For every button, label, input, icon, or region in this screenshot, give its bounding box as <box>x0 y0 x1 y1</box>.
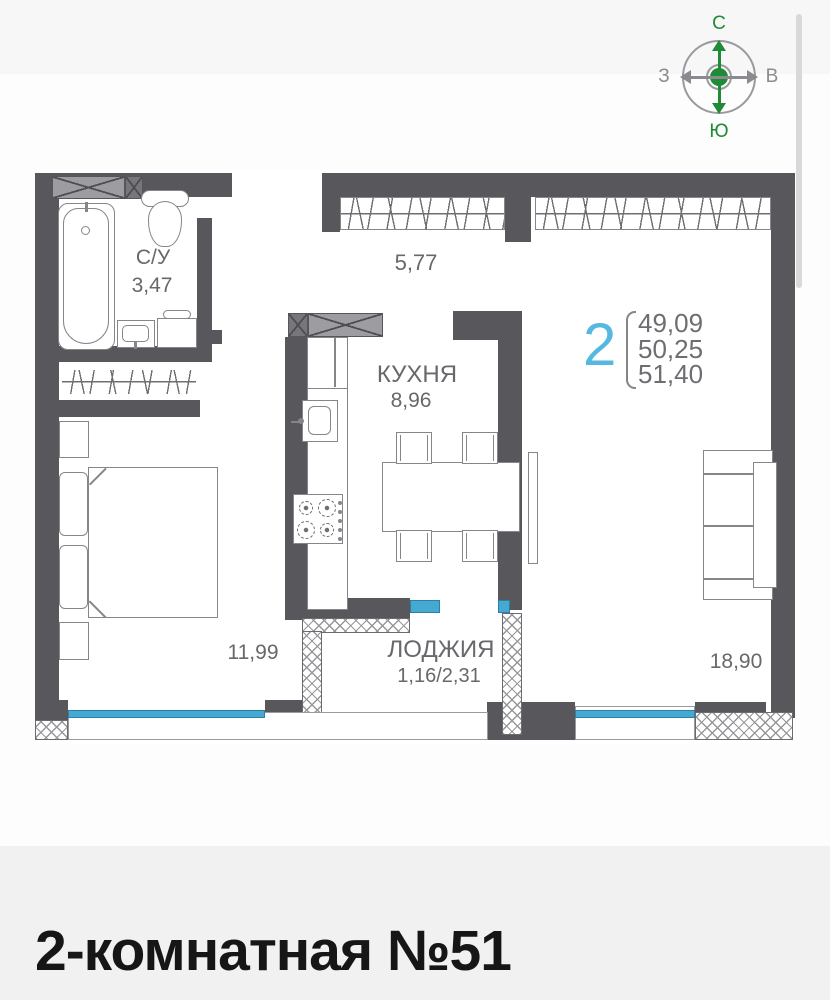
wall-hall-stub <box>505 197 531 242</box>
stove-burner-2 <box>318 499 336 517</box>
rooms-count: 2 <box>583 315 616 375</box>
wall-right <box>771 197 795 718</box>
wall-left <box>35 173 59 720</box>
compass-west-east-arrow <box>690 76 748 79</box>
vent-shaft-kitchen-small <box>288 313 308 337</box>
wardrobe-rail-living <box>535 197 771 230</box>
washer-cabinet-top <box>163 310 191 319</box>
living-room-area: 18,90 <box>710 650 763 674</box>
wall-entry-nub <box>322 197 340 232</box>
washer-cabinet <box>157 318 197 348</box>
wardrobe-rail-corridor <box>62 370 196 394</box>
bathroom-area: 3,47 <box>132 274 173 298</box>
window-marker-loggia-right <box>498 600 510 613</box>
wall-loggia-right-foot <box>487 702 575 740</box>
compass: С Ю З В <box>650 0 810 160</box>
wall-bottom-left-foot <box>35 700 68 720</box>
dining-chair-1 <box>396 432 432 464</box>
summary-area-total: 49,09 <box>638 311 703 337</box>
dining-chair-3 <box>396 530 432 562</box>
bathroom-label: С/У <box>136 246 170 270</box>
vent-shaft-bathroom <box>52 176 125 199</box>
stove-knob-3 <box>338 519 342 523</box>
stove-knob-4 <box>338 528 342 532</box>
stove-knob-2 <box>338 510 342 514</box>
bathroom-sink-basin <box>122 325 149 342</box>
wardrobe-rail-hallway <box>340 197 505 230</box>
bathtub-tap <box>85 202 88 212</box>
hatch-bottom-right <box>695 712 793 740</box>
summary-areas: 49,09 50,25 51,40 <box>638 311 703 388</box>
wall-kitchen-left <box>285 337 307 610</box>
kitchen-fridge-divider <box>334 338 336 387</box>
stove-burner-3 <box>297 521 315 539</box>
stove-burner-1 <box>299 501 313 515</box>
nightstand-bottom <box>59 622 89 660</box>
wall-bottom-right-slim <box>695 702 766 712</box>
stove-burner-4 <box>320 523 334 537</box>
compass-label-north: С <box>712 13 726 35</box>
stove-knob-1 <box>338 501 342 505</box>
nightstand-top <box>59 421 89 458</box>
wall-bedroom-top <box>59 400 200 417</box>
area-summary: 2 49,09 50,25 51,40 <box>580 305 740 395</box>
dining-table <box>382 462 520 532</box>
bathtub-drain <box>81 226 90 235</box>
compass-east-arrowhead <box>747 70 758 84</box>
compass-label-west: З <box>658 66 669 88</box>
kitchen-fridge <box>307 337 348 389</box>
hatch-loggia-right <box>502 613 522 735</box>
kitchen-label: КУХНЯ <box>377 361 457 389</box>
compass-label-south: Ю <box>709 121 728 143</box>
dining-chair-4 <box>462 530 498 562</box>
floor-plan-page: С Ю З В <box>0 0 830 1000</box>
loggia-label: ЛОДЖИЯ <box>388 636 495 664</box>
toilet-bowl <box>148 201 182 247</box>
bathroom-sink-tap <box>134 342 137 349</box>
sofa-backrest <box>753 462 777 588</box>
kitchen-sink-unit <box>302 400 338 442</box>
page-title: 2-комнатная №51 <box>35 918 511 984</box>
bed-fold-bottom <box>89 600 106 617</box>
bed <box>88 467 218 618</box>
compass-south-arrowhead <box>712 103 726 114</box>
bed-fold-top <box>89 468 106 485</box>
bathroom-sink <box>117 320 155 348</box>
compass-west-arrowhead <box>680 70 691 84</box>
dining-chair-2 <box>462 432 498 464</box>
vent-shaft-kitchen <box>308 313 383 337</box>
hallway-area: 5,77 <box>395 250 438 276</box>
wall-bathroom-right <box>197 218 212 346</box>
window-marker-loggia-left <box>410 600 440 613</box>
loggia-area: 1,16/2,31 <box>397 665 480 688</box>
wall-bathroom-door-stub <box>210 330 222 344</box>
bedroom-area: 11,99 <box>228 641 279 665</box>
living-door-leaf <box>528 452 538 564</box>
hatch-bottom-left <box>35 720 68 740</box>
compass-north-arrowhead <box>712 40 726 51</box>
summary-area-full: 51,40 <box>638 362 703 388</box>
bathtub <box>58 203 115 350</box>
window-bedroom <box>68 710 265 718</box>
kitchen-sink-tap-stub <box>291 421 301 423</box>
summary-bracket <box>626 311 636 389</box>
window-living <box>575 710 695 718</box>
wall-top-right <box>322 173 795 197</box>
wall-kitchen-top-right <box>453 311 522 340</box>
bed-pillow-2 <box>59 545 88 609</box>
compass-label-east: В <box>766 66 779 88</box>
kitchen-stove <box>293 494 343 544</box>
bed-pillow-1 <box>59 472 88 536</box>
kitchen-area: 8,96 <box>391 389 432 413</box>
stove-knob-5 <box>338 537 342 541</box>
scrollbar[interactable] <box>796 14 802 288</box>
kitchen-sink-basin <box>308 406 331 435</box>
